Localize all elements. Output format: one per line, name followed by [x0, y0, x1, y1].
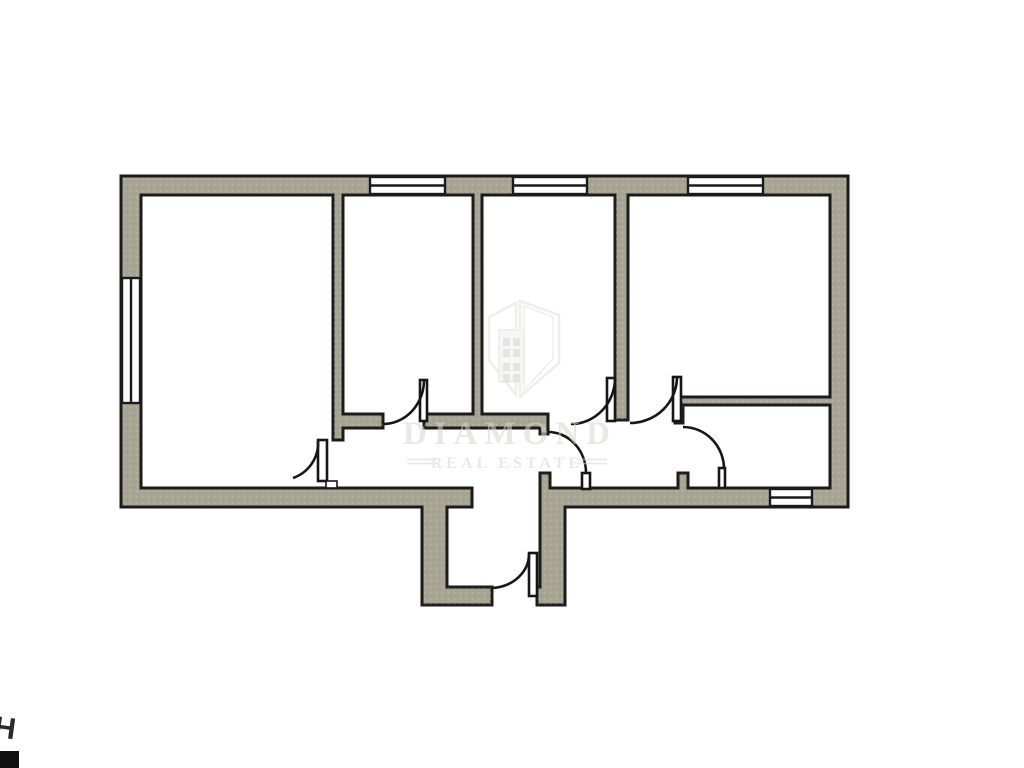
door-swing-arc [293, 441, 318, 478]
window-top-right [688, 177, 763, 194]
door-leaf [719, 468, 725, 488]
floorplan-svg: DIAMOND REAL ESTATE [0, 0, 1024, 768]
window-top-middle [513, 177, 587, 194]
logo-building [499, 330, 524, 382]
door-jamb-notch [326, 481, 337, 488]
window-left-wall [122, 278, 140, 403]
door-entry [492, 553, 537, 596]
door-room-4 [630, 377, 681, 423]
door-swing-arc [630, 377, 677, 423]
watermark-brand: DIAMOND [403, 416, 617, 452]
wall-shell [121, 176, 848, 605]
door-leaf [582, 473, 590, 489]
door-leaf [529, 553, 537, 596]
door-leaf [318, 440, 327, 481]
door-swing-arc [492, 554, 529, 588]
window-top-left [370, 177, 445, 194]
window-bottom-right [770, 489, 812, 506]
wall-texture [121, 176, 848, 605]
corner-black-block [0, 751, 19, 768]
door-living-room [293, 440, 337, 488]
logo-right-facet-inner [524, 306, 553, 390]
walls [121, 176, 848, 605]
watermark-logo [489, 301, 559, 397]
watermark: DIAMOND REAL ESTATE [403, 301, 617, 472]
watermark-tagline: REAL ESTATE [431, 455, 583, 472]
floorplan-image: DIAMOND REAL ESTATE H [0, 0, 1024, 768]
door-swing-arc [683, 427, 724, 469]
